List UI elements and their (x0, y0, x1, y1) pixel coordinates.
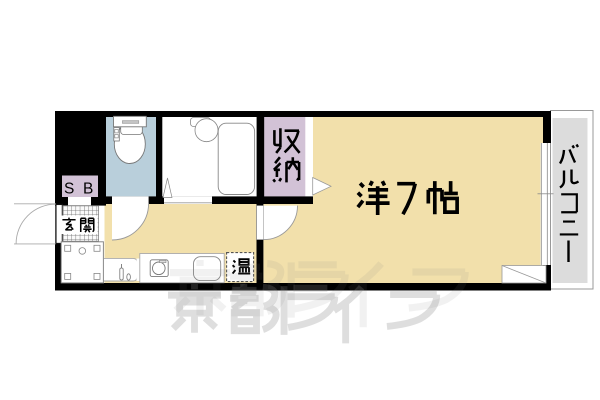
svg-text:S: S (64, 180, 74, 197)
svg-text:B: B (83, 180, 93, 197)
